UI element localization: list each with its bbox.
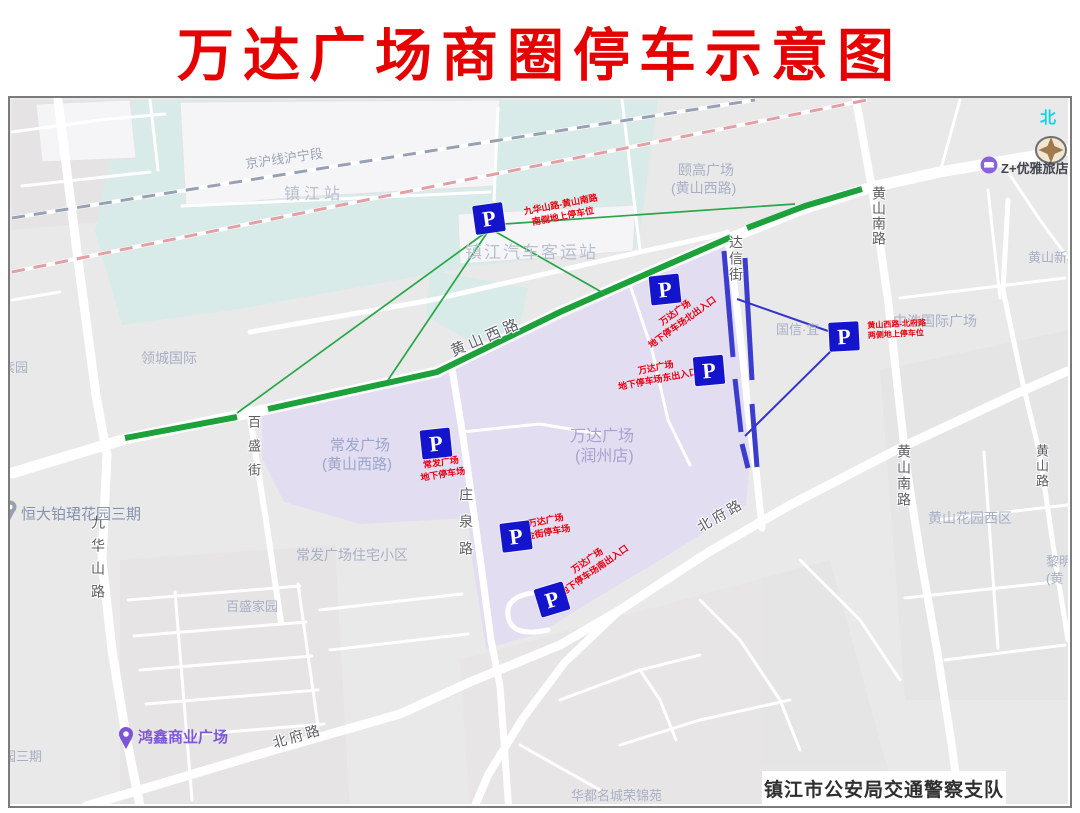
parking-icon-huangshanxi-beifu: P	[828, 321, 859, 352]
page-title: 万达广场商圈停车示意图	[0, 10, 1080, 92]
road-label-huangshan-south-top: 黄山南路	[869, 186, 889, 246]
yigao-plaza-label-2: (黄山西路)	[671, 180, 736, 196]
hengda-label: 恒大铂珺花园三期	[21, 503, 141, 524]
changfa-plaza-label-2: (黄山西路)	[322, 456, 392, 473]
guoxin-label: 国信·宜	[776, 323, 819, 338]
parking-letter: P	[542, 585, 562, 614]
bus-station-label: 镇江汽车客运站	[465, 243, 598, 263]
road-label-huangshan-road: 黄山路	[1032, 444, 1051, 489]
road-label-huangshan-south-right: 黄山南路	[894, 444, 914, 508]
huadu-label: 华都名城荣锦苑	[571, 789, 662, 804]
credit-box: 镇江市公安局交通警察支队	[762, 771, 1006, 804]
parking-letter: P	[428, 430, 444, 457]
changfa-plaza-label-1: 常发广场	[330, 437, 390, 454]
parking-letter: P	[837, 323, 852, 350]
lingcheng-label: 领城国际	[141, 350, 197, 366]
parking-letter: P	[657, 276, 673, 303]
huangshan-garden-west-label: 黄山花园西区	[928, 510, 1012, 526]
parking-icon-wanda-north: P	[649, 274, 682, 306]
credit-text: 镇江市公安局交通警察支队	[764, 775, 1004, 802]
wanda-plaza-label-2: (润州店)	[575, 448, 634, 466]
wanda-plaza-label-1: 万达广场	[570, 428, 634, 446]
road-label-daxin-street: 达信街	[726, 235, 746, 283]
parking-icon-jiuhuashan: P	[472, 202, 506, 235]
hongxin-label: 鸿鑫商业广场	[138, 726, 228, 747]
liming-label-2: (黄	[1046, 572, 1063, 587]
parking-letter: P	[481, 205, 498, 233]
hotel-pin-icon	[981, 157, 998, 174]
parking-icon-changfa: P	[420, 428, 453, 460]
map-canvas: 京沪线沪宁段 镇江站 颐高广场 (黄山西路) 镇江汽车客运站 紫园 领城国际 恒…	[10, 98, 1068, 804]
parking-letter: P	[701, 357, 717, 384]
parking-icon-wanda-east: P	[693, 355, 725, 387]
parking-letter: P	[508, 523, 525, 550]
zhenjiang-station-label: 镇江站	[284, 186, 344, 204]
zeyuan-label: 泽园三期	[10, 750, 42, 765]
road-label-baisheng-street: 百盛街	[244, 415, 263, 487]
road-label-zhuangquan: 庄泉路	[456, 487, 476, 568]
huangshan-xincun-label: 黄山新村	[1028, 251, 1068, 266]
baisheng-homeland-label: 百盛家园	[226, 600, 278, 615]
liming-label-1: 黎明	[1046, 555, 1068, 570]
changfa-residential-label: 常发广场住宅小区	[296, 547, 408, 563]
parking-icon-wanda-goldstreet: P	[499, 520, 532, 552]
road-label-jiuhuashan: 九华山路	[88, 515, 108, 607]
hotel-label: Z+优雅旅店	[1001, 158, 1068, 177]
note-huangshanxi-beifu: 黄山西路-北府路 两侧地上停车位	[867, 318, 927, 342]
compass-north-label: 北	[1040, 104, 1056, 128]
ziyuan-label: 紫园	[10, 361, 28, 376]
yigao-plaza-label-1: 颐高广场	[678, 162, 734, 178]
